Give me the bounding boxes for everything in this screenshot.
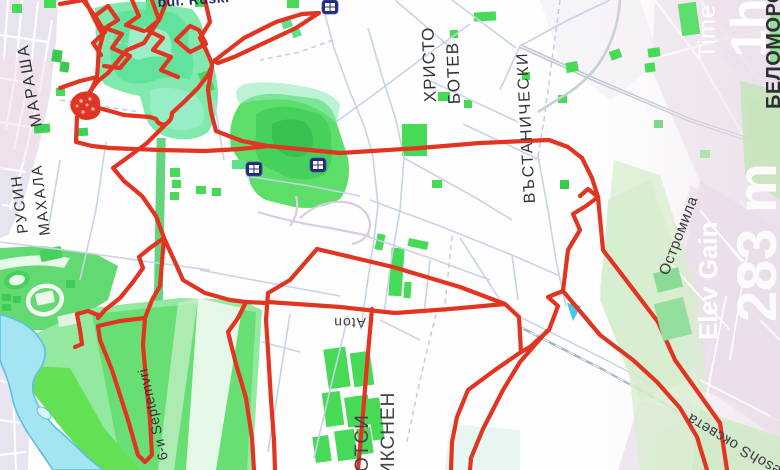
svg-text:1h 3m: 1h 3m — [721, 0, 777, 57]
svg-text:ИКСНЕН: ИКСНЕН — [378, 392, 399, 470]
svg-text:ХРИСТО: ХРИСТО — [418, 26, 440, 102]
svg-text:БОТЕВ: БОТЕВ — [443, 42, 464, 105]
svg-text:Elev Gain: Elev Gain — [693, 222, 723, 341]
svg-text:Time: Time — [694, 5, 721, 59]
svg-text:283 m: 283 m — [725, 163, 780, 322]
svg-text:Aton: Aton — [333, 315, 366, 331]
svg-text:ОТСИ: ОТСИ — [352, 414, 373, 470]
